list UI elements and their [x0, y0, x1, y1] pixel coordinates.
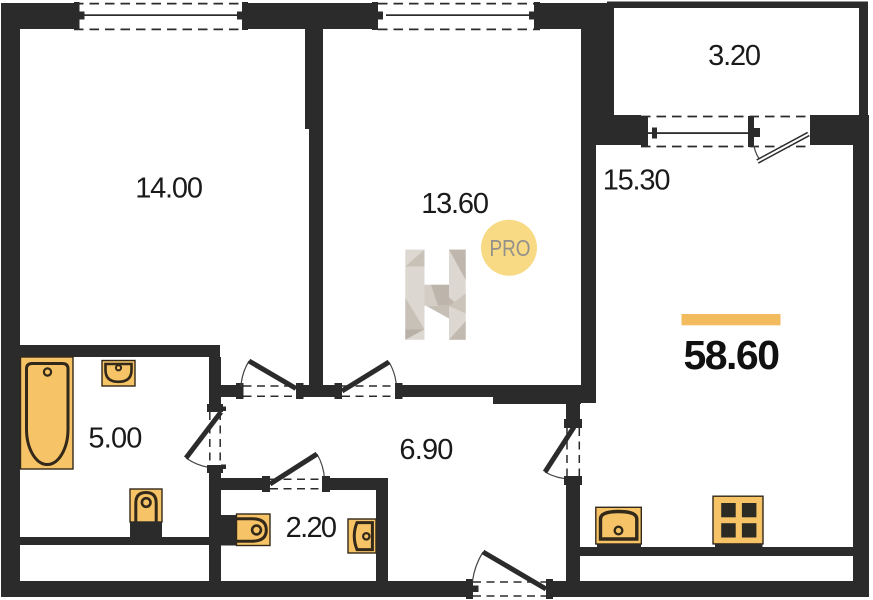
- svg-text:6.90: 6.90: [399, 434, 452, 466]
- svg-text:3.20: 3.20: [708, 40, 760, 72]
- svg-text:14.00: 14.00: [135, 173, 202, 205]
- svg-text:5.00: 5.00: [88, 423, 141, 455]
- svg-text:58.60: 58.60: [683, 332, 779, 378]
- svg-text:15.30: 15.30: [603, 165, 670, 197]
- svg-text:13.60: 13.60: [421, 188, 488, 220]
- svg-text:PRO: PRO: [490, 235, 531, 261]
- svg-text:2.20: 2.20: [286, 512, 336, 544]
